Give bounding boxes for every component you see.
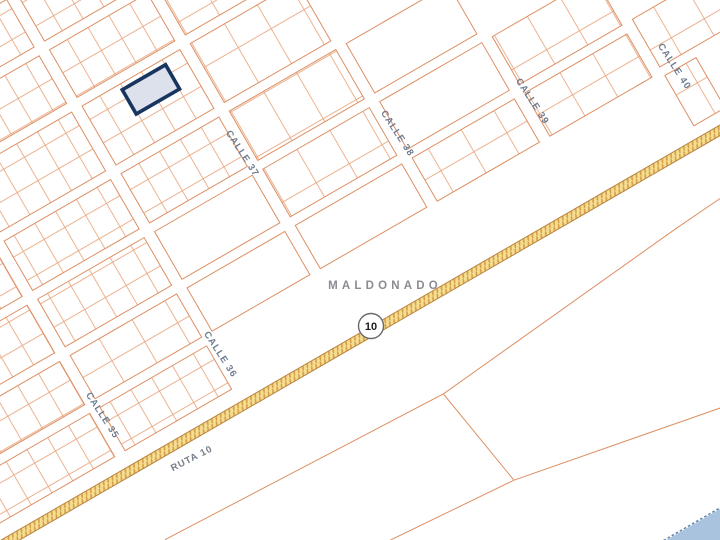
city-block bbox=[187, 231, 310, 331]
water-area bbox=[493, 350, 720, 540]
city-block bbox=[632, 0, 720, 67]
place-label-maldonado: MALDONADO bbox=[328, 280, 442, 292]
cadastral-map: CALLE 35 CALLE 36 CALLE 37 CALLE 38 CALL… bbox=[0, 0, 720, 540]
city-block bbox=[412, 99, 539, 201]
route-10-shield-icon: 10 bbox=[359, 314, 384, 339]
map-canvas[interactable]: CALLE 35 CALLE 36 CALLE 37 CALLE 38 CALL… bbox=[0, 0, 720, 540]
water-edge bbox=[493, 349, 720, 540]
route-shield-number: 10 bbox=[365, 321, 377, 333]
parcel-grid bbox=[0, 0, 720, 540]
city-block bbox=[346, 0, 477, 93]
city-blocks bbox=[0, 0, 720, 540]
